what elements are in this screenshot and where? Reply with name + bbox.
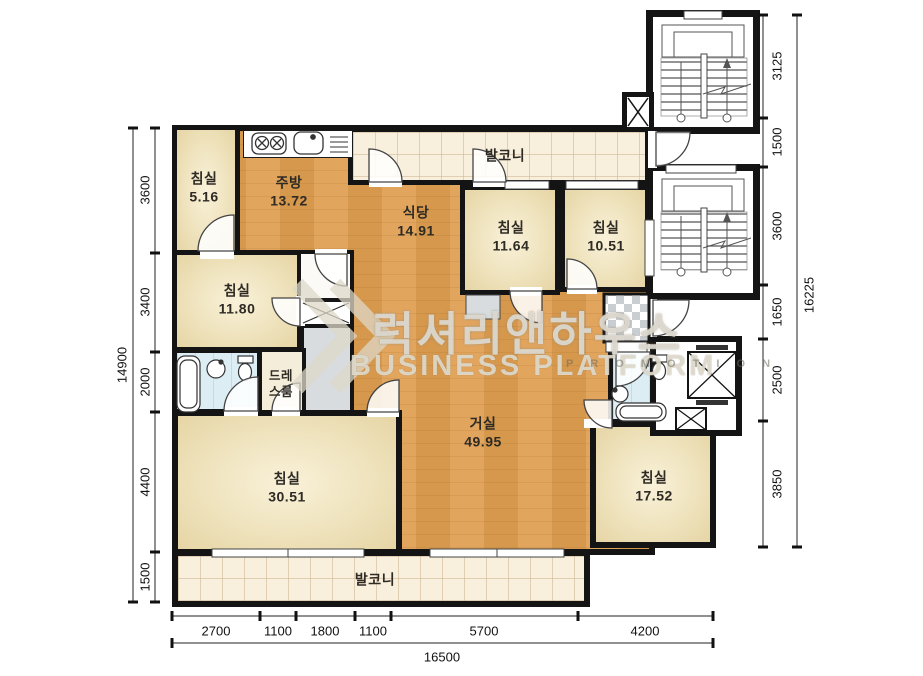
label-kitchen: 주방 13.72 (270, 175, 308, 210)
room-area: 13.72 (270, 192, 308, 210)
room-area: 11.80 (219, 300, 256, 318)
sink-icon (294, 132, 348, 154)
room-name: 발코니 (485, 147, 525, 165)
dim-left-3: 4400 (138, 468, 153, 497)
label-bedroom-1752: 침실 17.52 (635, 470, 673, 505)
label-bedroom-516: 침실 5.16 (189, 171, 218, 206)
label-bedroom-1164: 침실 11.64 (493, 220, 530, 255)
door-bedroom-1051 (567, 259, 597, 289)
toilet-right-icon (652, 355, 667, 380)
room-area: 49.95 (464, 433, 502, 451)
dim-bottom-total: 16500 (424, 650, 460, 665)
pantry-duct-x-icon (303, 303, 349, 323)
washbasin-icon (207, 360, 225, 378)
label-bedroom-1051: 침실 10.51 (587, 220, 625, 255)
room-area: 14.91 (397, 222, 435, 240)
stove-icon (252, 133, 286, 154)
door-stair-hall (656, 132, 690, 166)
room-name: 침실 (593, 220, 620, 238)
dim-bottom-1: 1100 (264, 624, 292, 639)
elevator-icon (688, 345, 736, 405)
room-name: 발코니 (355, 571, 395, 589)
floor-plan: 침실 5.16 주방 13.72 식당 14.91 발코니 침실 11.64 침… (0, 0, 923, 676)
room-name: 거실 (470, 416, 497, 434)
dim-left-total: 14900 (115, 347, 130, 383)
hall-closet (466, 295, 500, 319)
door-bedroom-516 (198, 215, 234, 251)
dim-left-1: 3400 (138, 288, 153, 317)
dim-right-0: 3125 (770, 52, 785, 81)
stairs-top-icon (661, 25, 751, 122)
room-area: 17.52 (635, 487, 673, 505)
door-bedroom-1164 (510, 291, 542, 323)
label-living: 거실 49.95 (464, 416, 502, 451)
washbasin-right-icon (612, 386, 628, 402)
dim-left-0: 3600 (138, 176, 153, 205)
dim-right-3: 1650 (770, 298, 785, 327)
room-name: 식당 (403, 205, 430, 223)
bathtub-right-icon (616, 403, 666, 421)
door-balcony-a (369, 149, 402, 182)
dim-right-2: 3600 (770, 212, 785, 241)
room-name: 침실 (224, 283, 251, 301)
room-area: 11.64 (493, 237, 530, 255)
room-area: 30.51 (268, 488, 306, 506)
dim-right-5: 3850 (770, 470, 785, 499)
label-dress-room: 드레스룸 (265, 368, 297, 401)
label-bedroom-3051: 침실 30.51 (268, 471, 306, 506)
toilet-icon (238, 356, 253, 381)
door-bedroom-3051 (367, 380, 399, 412)
duct-icon (676, 408, 706, 430)
door-unit-entry (653, 300, 689, 336)
dim-bottom-5: 4200 (631, 624, 660, 639)
dim-bottom-3: 1100 (359, 624, 387, 639)
label-bedroom-1180: 침실 11.80 (219, 283, 256, 318)
label-balcony-top: 발코니 (485, 147, 525, 165)
entry-hall (466, 294, 649, 352)
dim-bottom-0: 2700 (202, 624, 231, 639)
room-name: 침실 (498, 220, 525, 238)
room-name: 주방 (276, 175, 303, 193)
dim-bottom-4: 5700 (470, 624, 499, 639)
dim-right-1: 1500 (770, 128, 785, 157)
room-name: 침실 (274, 471, 301, 489)
dim-right-total: 16225 (802, 277, 817, 313)
door-pantry (315, 254, 347, 286)
door-bedroom-1180 (272, 298, 300, 326)
dim-left-2: 2000 (138, 368, 153, 397)
room-name: 드레스룸 (265, 368, 297, 401)
room-area: 10.51 (587, 237, 625, 255)
label-balcony-bottom: 발코니 (355, 571, 395, 589)
room-name: 침실 (191, 171, 218, 189)
door-bathroom-right (616, 352, 650, 386)
stairs-bottom-icon (661, 179, 751, 276)
room-name: 침실 (641, 470, 668, 488)
room-area: 5.16 (189, 188, 218, 206)
dim-left-4: 1500 (138, 563, 153, 592)
label-dining: 식당 14.91 (397, 205, 435, 240)
door-bathroom-left (224, 377, 258, 411)
shoe-cabinet (606, 342, 647, 352)
dim-bottom-2: 1800 (311, 624, 340, 639)
dim-right-4: 2500 (770, 366, 785, 395)
shaft-top-x-icon (628, 98, 648, 126)
bathtub-icon (177, 356, 200, 412)
